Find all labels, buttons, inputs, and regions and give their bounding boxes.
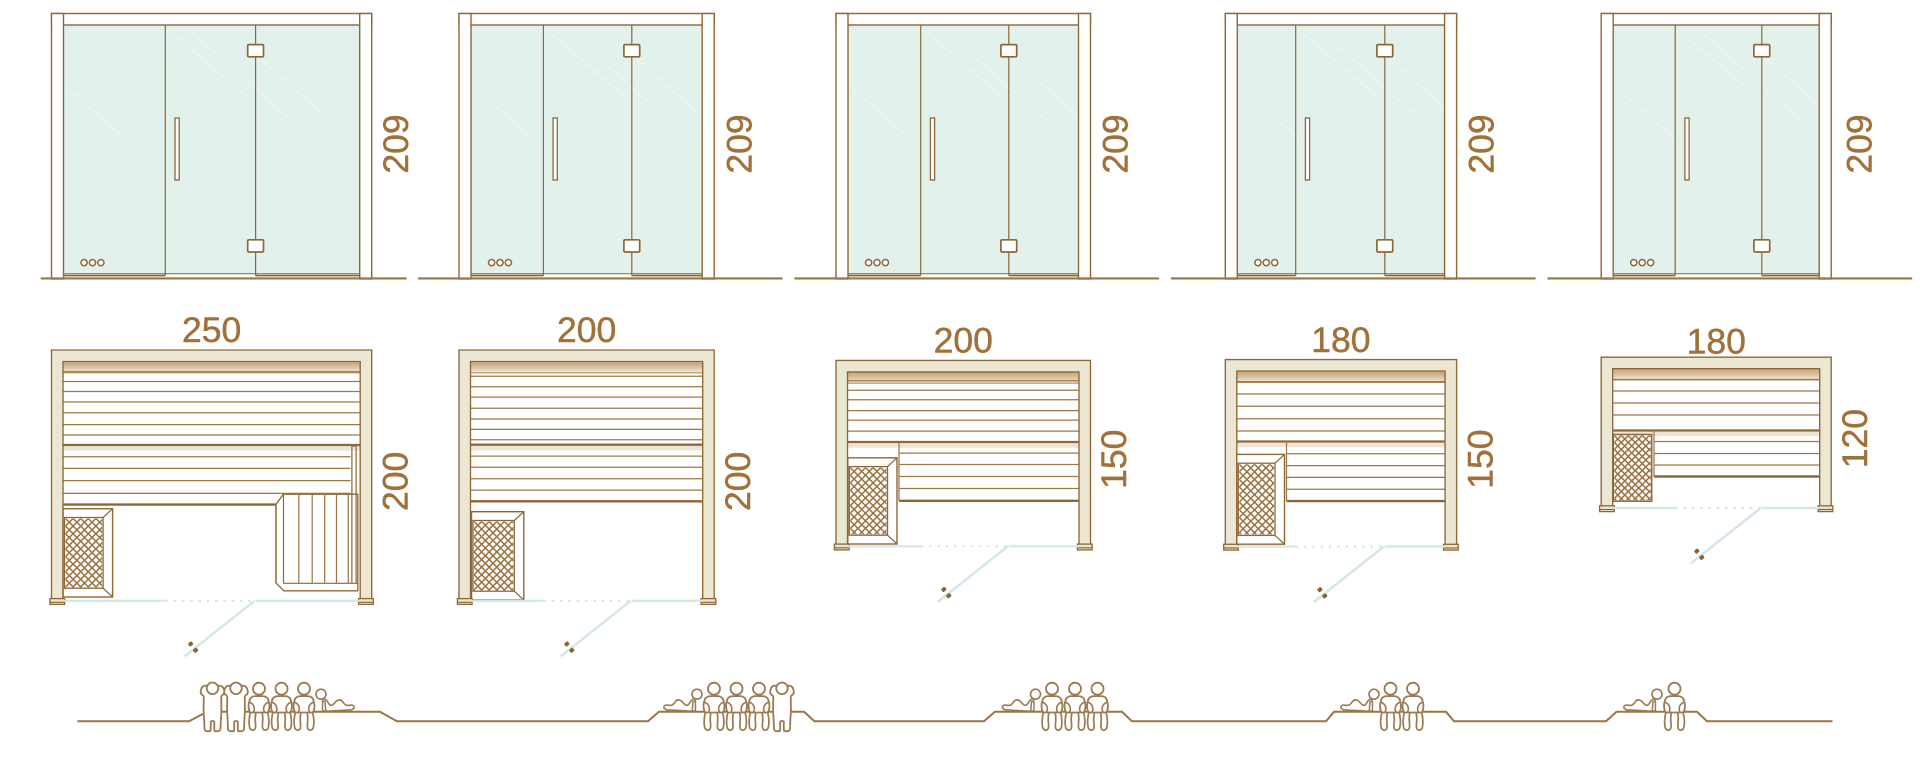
svg-text:200: 200 bbox=[557, 310, 616, 350]
svg-text:209: 209 bbox=[1462, 114, 1502, 173]
svg-text:150: 150 bbox=[1094, 430, 1134, 489]
svg-text:150: 150 bbox=[1460, 429, 1500, 488]
svg-text:209: 209 bbox=[1096, 114, 1136, 173]
svg-text:180: 180 bbox=[1687, 322, 1746, 362]
svg-text:200: 200 bbox=[375, 452, 415, 511]
svg-text:250: 250 bbox=[182, 310, 241, 350]
svg-text:209: 209 bbox=[720, 114, 760, 173]
svg-text:200: 200 bbox=[934, 321, 993, 361]
svg-text:209: 209 bbox=[1840, 114, 1880, 173]
svg-text:180: 180 bbox=[1311, 320, 1370, 360]
svg-text:209: 209 bbox=[376, 114, 416, 173]
svg-text:120: 120 bbox=[1835, 409, 1875, 468]
svg-text:200: 200 bbox=[718, 452, 758, 511]
